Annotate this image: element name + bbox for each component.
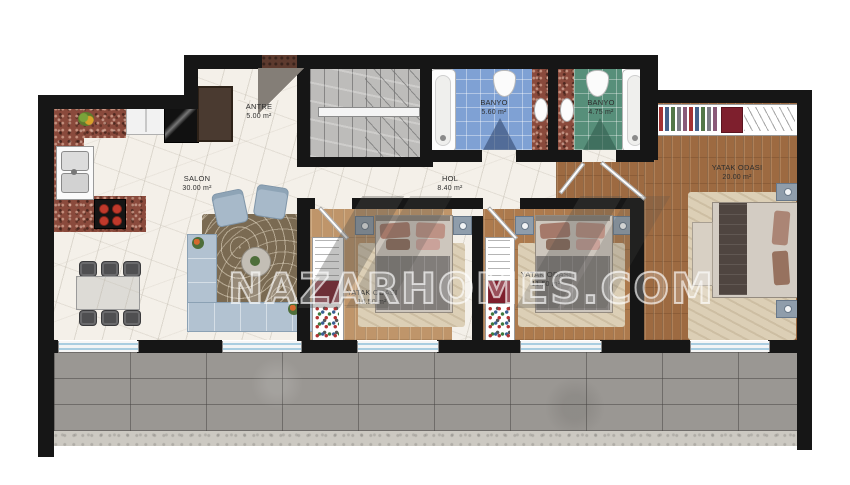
bathroom1-wall-left	[420, 55, 432, 162]
wardrobe-hanger-rail	[744, 107, 795, 131]
window	[690, 341, 770, 352]
nightstand	[515, 216, 534, 235]
outer-wall-top-right	[650, 90, 805, 103]
lamp	[784, 305, 792, 313]
pillow	[772, 210, 791, 245]
nightstand	[453, 216, 472, 235]
dining-chair	[101, 261, 119, 277]
dining-chair	[79, 310, 97, 326]
room-area: 4.75 m²	[559, 108, 643, 117]
bottom-wall	[600, 340, 690, 353]
bathtub-drain	[632, 135, 638, 141]
bathrooms-wall-south-c	[616, 150, 654, 162]
outer-wall-top-kitchen	[38, 95, 198, 109]
bathroom2-door	[583, 118, 617, 150]
stairwell-wall-bottom	[297, 157, 433, 167]
bathroom1-door	[483, 118, 517, 150]
bottom-wall	[768, 340, 798, 353]
bottom-wall	[48, 340, 58, 353]
armchair	[253, 184, 290, 221]
window	[357, 341, 439, 352]
outer-wall-top-baths	[428, 55, 658, 69]
dining-table	[76, 276, 140, 310]
outer-wall-top-mid	[304, 55, 434, 69]
room-name: BANYO	[452, 98, 536, 108]
bathrooms-wall-south-b	[516, 150, 582, 162]
sink-faucet	[71, 169, 77, 175]
outer-wall-top-left	[184, 55, 262, 69]
burner	[112, 216, 122, 226]
window	[58, 341, 139, 352]
dining-chair	[79, 261, 97, 277]
room-name: SALON	[155, 174, 239, 184]
bathroom-sink	[534, 98, 548, 122]
stair-railing	[318, 107, 420, 117]
lamp	[459, 222, 467, 230]
room-area: 30.00 m²	[155, 184, 239, 193]
outer-wall-right	[797, 90, 812, 450]
sink-basin-top	[61, 151, 89, 171]
bottom-wall	[137, 340, 222, 353]
burner	[112, 204, 122, 214]
burner	[99, 216, 109, 226]
burner	[99, 204, 109, 214]
room-label-antre: ANTRE 5.00 m²	[217, 102, 301, 121]
wardrobe-clothes	[659, 107, 719, 131]
window	[520, 341, 602, 352]
room-name: ANTRE	[217, 102, 301, 112]
balcony-terrace	[54, 352, 798, 431]
room-area: 20.00 m²	[695, 173, 779, 182]
room-name: HOL	[408, 174, 492, 184]
watermark-text: NAZARHOMES.COM	[228, 264, 658, 313]
lamp	[521, 222, 529, 230]
floor-plan: ANTRE 5.00 m² SALON 30.00 m² HOL 8.40 m²…	[0, 0, 850, 485]
bed	[712, 202, 798, 298]
blanket	[719, 203, 747, 295]
room-label-banyo2: BANYO 4.75 m²	[559, 98, 643, 117]
bottom-wall	[300, 340, 357, 353]
room-area: 5.60 m²	[452, 108, 536, 117]
sink-basin-bottom	[61, 173, 89, 193]
lamp	[784, 188, 792, 196]
stove	[94, 199, 126, 229]
room-area: 8.40 m²	[408, 184, 492, 193]
window	[222, 341, 302, 352]
bathtub-drain	[440, 135, 446, 141]
room-name: YATAK ODASI	[695, 163, 779, 173]
dining-chair	[123, 310, 141, 326]
bathrooms-wall-mid	[548, 55, 558, 162]
fruit-bowl	[78, 112, 94, 126]
dining-chair	[123, 261, 141, 277]
room-label-bedroom3: YATAK ODASI 20.00 m²	[695, 163, 779, 182]
outer-wall-left	[38, 95, 54, 457]
pillow	[772, 250, 790, 285]
bedroom3-wardrobe	[656, 104, 798, 136]
bottom-wall	[437, 340, 520, 353]
wardrobe-red-cabinet	[721, 107, 743, 133]
room-label-banyo1: BANYO 5.60 m²	[452, 98, 536, 117]
dining-chair	[101, 310, 119, 326]
bathrooms-wall-south-a	[420, 150, 482, 162]
nightstand	[776, 300, 798, 318]
room-label-salon: SALON 30.00 m²	[155, 174, 239, 193]
plant	[192, 237, 204, 249]
room-area: 5.00 m²	[217, 112, 301, 121]
room-name: BANYO	[559, 98, 643, 108]
armchair	[211, 188, 249, 228]
nightstand	[776, 183, 798, 201]
room-label-hol: HOL 8.40 m²	[408, 174, 492, 193]
kitchen-sink	[56, 146, 94, 200]
balcony-edge	[54, 431, 798, 446]
